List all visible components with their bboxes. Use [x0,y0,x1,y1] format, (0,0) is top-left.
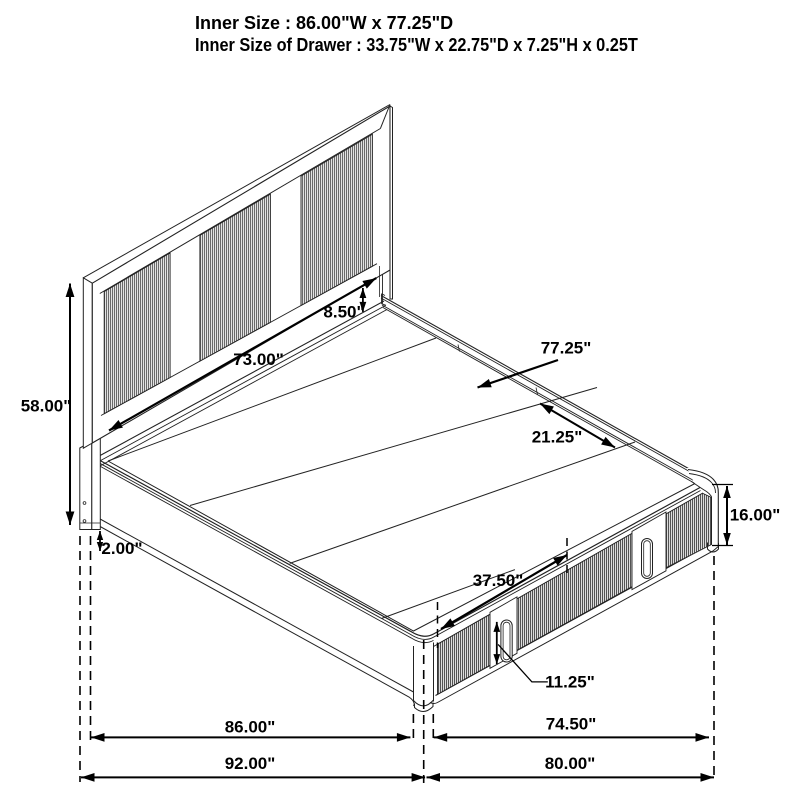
svg-text:58.00": 58.00" [21,397,72,416]
svg-text:80.00": 80.00" [545,754,596,773]
svg-text:8.50": 8.50" [323,303,364,322]
svg-text:16.00": 16.00" [730,506,781,525]
svg-text:11.25": 11.25" [545,673,595,692]
svg-text:2.00": 2.00" [101,539,142,558]
svg-text:86.00": 86.00" [225,718,276,737]
svg-text:73.00": 73.00" [233,350,284,369]
svg-text:37.50": 37.50" [473,571,524,590]
svg-text:74.50": 74.50" [546,715,597,734]
svg-text:21.25": 21.25" [532,428,583,447]
svg-text:92.00": 92.00" [225,754,276,773]
svg-text:77.25": 77.25" [541,339,592,358]
